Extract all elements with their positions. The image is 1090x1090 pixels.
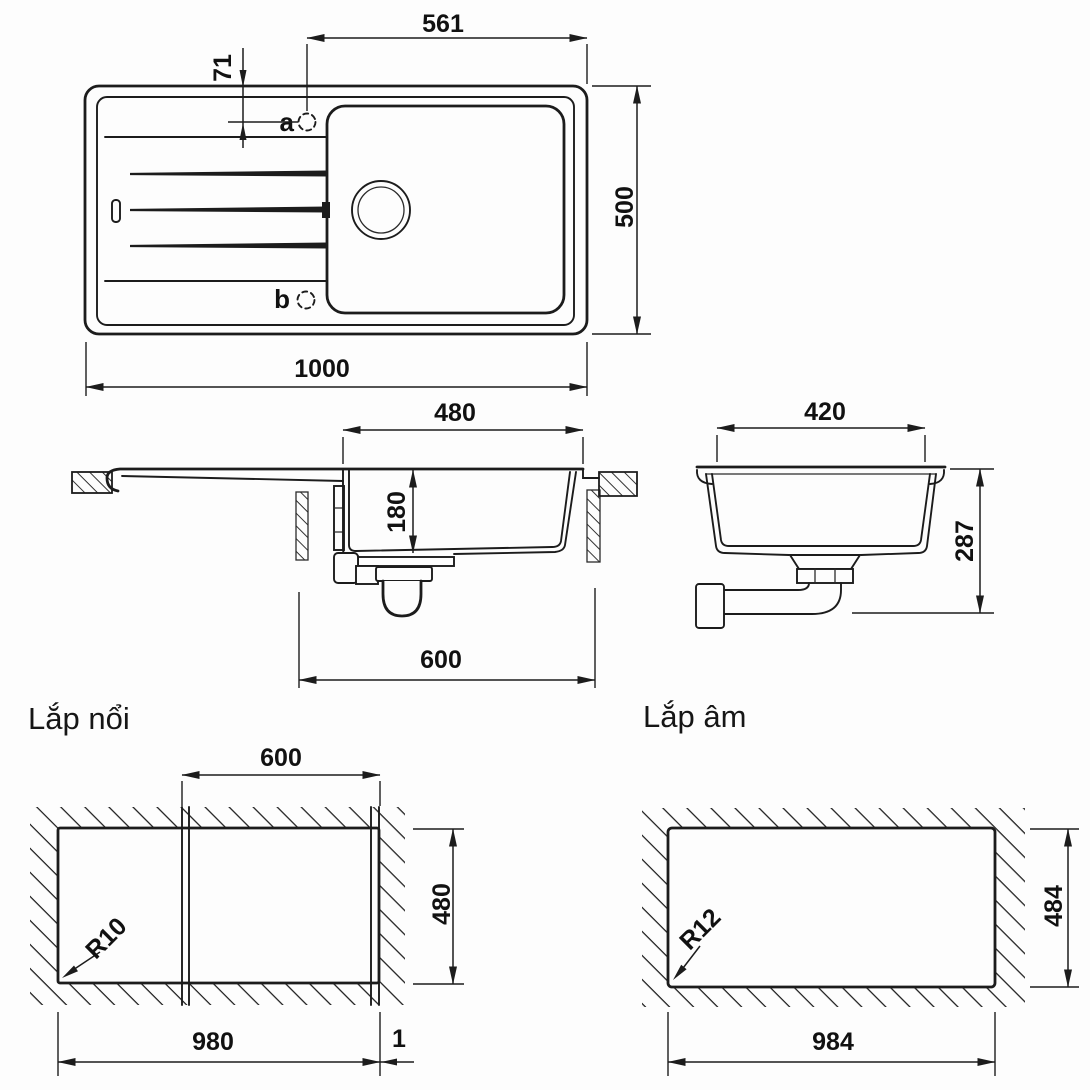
top-view: a b 561 71 500 1000 [85,10,651,396]
drain-hole-inner [358,187,404,233]
dim-480-cutout: 480 [428,883,456,925]
overflow-slot [112,200,120,222]
corner-radius-r10: R10 [80,912,132,964]
tap-hole-a [299,114,316,131]
mounting-clip-left [296,492,308,560]
countertop-hatch-band [642,808,1025,1007]
drainboard-underside [122,476,343,481]
corner-radius-r12: R12 [674,903,726,955]
side-section-view: 480 180 600 [72,399,637,688]
drain-flange [358,557,454,566]
rim-right-lip [930,470,944,484]
dim-484: 484 [1040,885,1068,927]
bowl-outer-wall-left [343,470,358,557]
sink-top-profile [107,469,583,491]
dim-180: 180 [383,491,411,533]
drain-locknut [797,569,853,583]
dim-420: 420 [804,398,846,426]
drainboard-groove [130,243,327,249]
sink-bowl-outline [327,106,564,313]
flush-mount-diagram: Lắp âm 484 984 R12 [642,699,1079,1076]
dim-980: 980 [192,1028,234,1056]
dim-561: 561 [422,10,464,38]
rim-left-lip [697,470,712,484]
dim-984: 984 [812,1028,854,1056]
dim-1000: 1000 [294,355,350,383]
drain-hole-outer [352,181,410,239]
dim-500: 500 [611,186,639,228]
surface-mount-diagram: Lắp nổi 600 480 980 1 R10 [28,701,464,1076]
drainboard-groove [130,207,327,213]
outlet-pipe-outer [724,583,841,614]
drain-flange-end [790,555,860,569]
countertop-hatch-band [30,807,405,1005]
outlet-pipe-end-flange [696,584,724,628]
flush-mount-title: Lắp âm [643,699,746,734]
cutout-rectangle [58,828,379,983]
dim-600-side: 600 [420,646,462,674]
end-section-view: 420 287 [696,398,994,628]
countertop-right-section [599,472,637,496]
drain-coupling-nut [356,566,378,584]
drainboard-groove [130,171,327,177]
cutout-rectangle [668,828,995,987]
outlet-pipe-inner [724,583,809,590]
technical-drawing-sheet: a b 561 71 500 1000 [0,0,1090,1090]
tap-hole-b [298,292,315,309]
dim-600-cutout: 600 [260,744,302,772]
p-trap-bulb [383,581,421,616]
sink-drawing-canvas: a b 561 71 500 1000 [0,0,1090,1090]
bowl-outer-wall-right [454,472,576,554]
dim-gap-1: 1 [392,1025,406,1053]
drain-elbow [334,553,358,583]
trap-body [376,567,432,581]
bowl-inner-surface [712,474,930,546]
dim-480: 480 [434,399,476,427]
groove-end-detail [322,202,330,218]
dim-287: 287 [951,520,979,562]
dim-71: 71 [209,54,237,82]
surface-mount-title: Lắp nổi [28,701,130,736]
tap-hole-b-label: b [274,284,290,314]
mounting-clip-right [587,490,600,562]
rim-right-hook [583,469,599,478]
